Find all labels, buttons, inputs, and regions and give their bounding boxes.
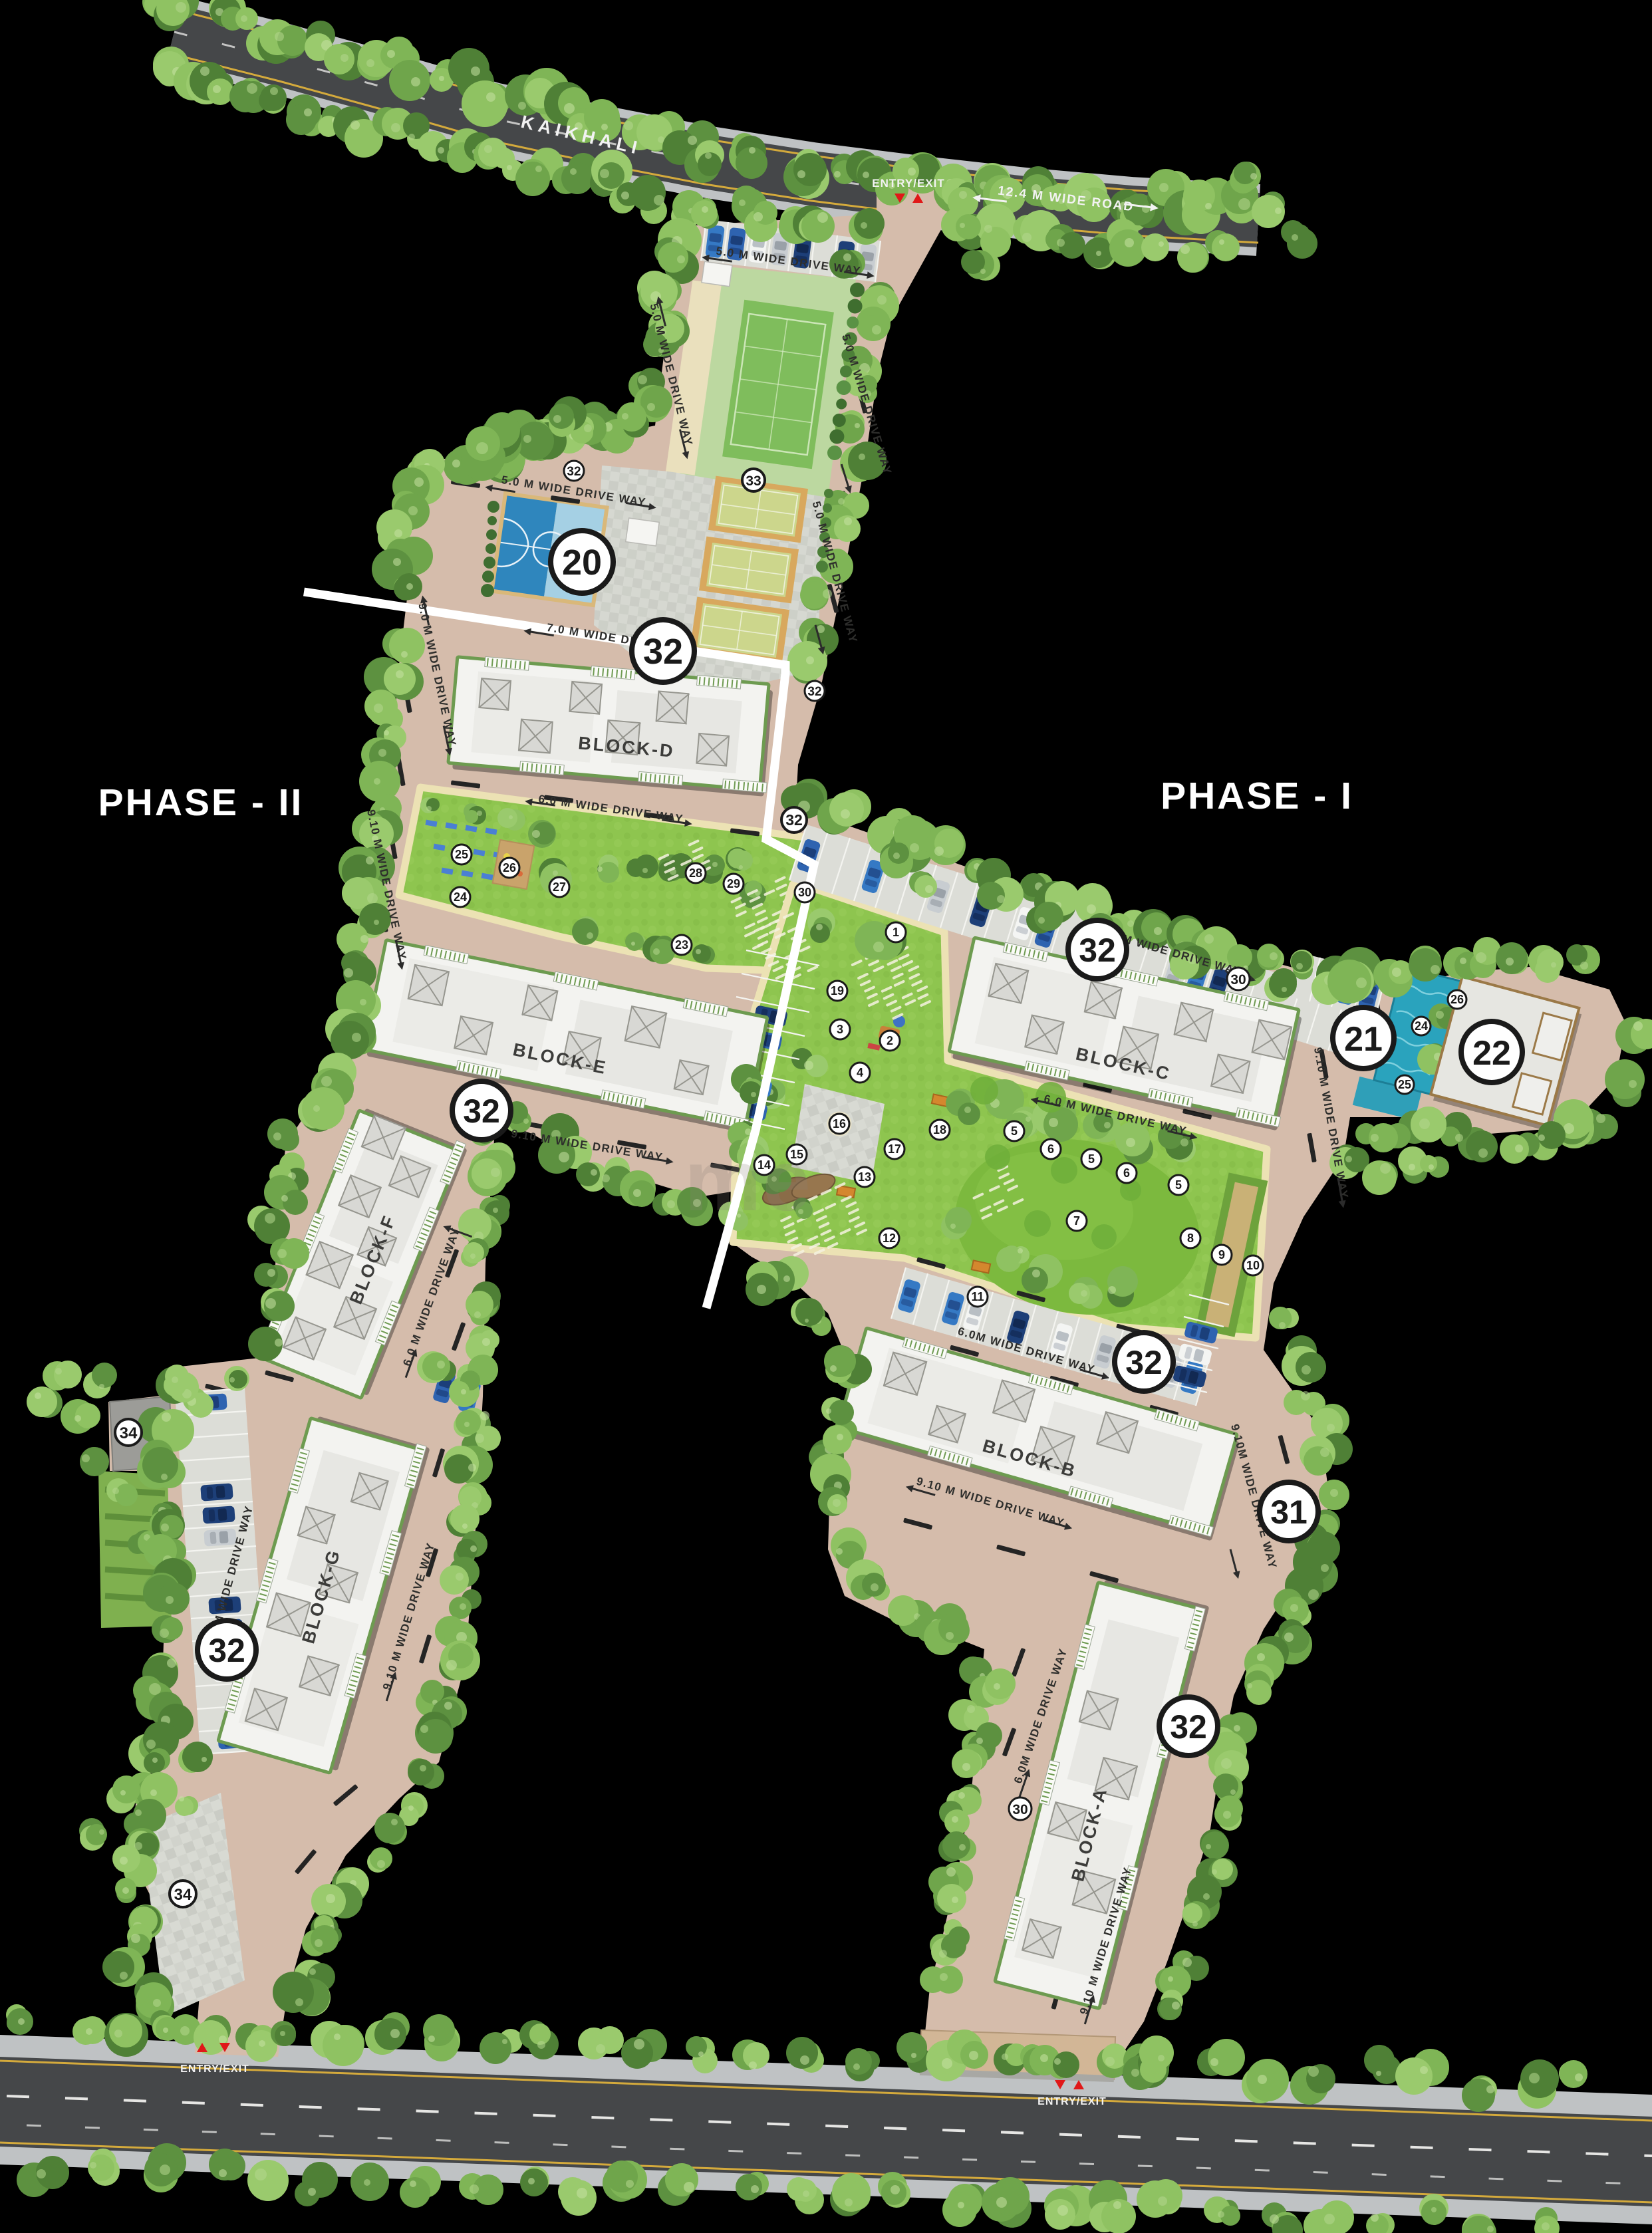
svg-text:4: 4 bbox=[857, 1066, 863, 1079]
svg-text:32: 32 bbox=[463, 1093, 500, 1130]
svg-text:1: 1 bbox=[893, 926, 899, 939]
svg-text:32: 32 bbox=[1170, 1708, 1207, 1746]
svg-text:10: 10 bbox=[1246, 1259, 1260, 1272]
svg-text:14: 14 bbox=[757, 1158, 771, 1172]
svg-text:18: 18 bbox=[933, 1123, 946, 1136]
svg-text:22: 22 bbox=[1472, 1034, 1511, 1073]
svg-text:32: 32 bbox=[643, 632, 683, 672]
svg-text:20: 20 bbox=[562, 543, 602, 583]
svg-text:5: 5 bbox=[1011, 1124, 1018, 1138]
svg-text:PHASE - II: PHASE - II bbox=[98, 781, 304, 824]
svg-text:ENTRY/EXIT: ENTRY/EXIT bbox=[872, 177, 945, 190]
svg-text:7: 7 bbox=[1073, 1214, 1080, 1228]
svg-text:25: 25 bbox=[1398, 1078, 1411, 1091]
svg-text:17: 17 bbox=[888, 1142, 901, 1156]
svg-text:26: 26 bbox=[1450, 993, 1464, 1006]
svg-text:24: 24 bbox=[454, 890, 467, 904]
svg-text:33: 33 bbox=[746, 473, 761, 489]
svg-text:5: 5 bbox=[1088, 1152, 1095, 1166]
svg-text:6: 6 bbox=[1123, 1166, 1130, 1180]
svg-text:24: 24 bbox=[1415, 1019, 1428, 1033]
svg-text:31: 31 bbox=[1270, 1494, 1308, 1531]
svg-text:32: 32 bbox=[1125, 1344, 1163, 1381]
svg-text:ENTRY/EXIT: ENTRY/EXIT bbox=[1037, 2096, 1107, 2107]
svg-text:30: 30 bbox=[798, 886, 811, 899]
svg-text:30: 30 bbox=[1230, 972, 1246, 987]
svg-text:3: 3 bbox=[837, 1023, 843, 1036]
svg-text:32: 32 bbox=[567, 465, 581, 479]
svg-text:32: 32 bbox=[785, 811, 803, 829]
svg-text:32: 32 bbox=[208, 1632, 245, 1669]
svg-text:26: 26 bbox=[503, 861, 516, 874]
svg-text:28: 28 bbox=[689, 866, 702, 880]
svg-text:21: 21 bbox=[1344, 1020, 1383, 1059]
svg-text:12: 12 bbox=[883, 1232, 896, 1245]
svg-text:32: 32 bbox=[807, 685, 821, 699]
svg-text:15: 15 bbox=[790, 1148, 803, 1161]
svg-text:19: 19 bbox=[831, 984, 844, 997]
svg-text:PHASE - I: PHASE - I bbox=[1161, 775, 1353, 817]
svg-text:5: 5 bbox=[1175, 1178, 1182, 1192]
svg-text:8: 8 bbox=[1187, 1232, 1194, 1245]
svg-text:30: 30 bbox=[1012, 1802, 1028, 1817]
svg-text:27: 27 bbox=[553, 880, 566, 894]
svg-text:34: 34 bbox=[120, 1424, 138, 1442]
svg-text:13: 13 bbox=[858, 1170, 871, 1184]
svg-text:32: 32 bbox=[1079, 932, 1116, 969]
svg-text:34: 34 bbox=[174, 1886, 192, 1904]
svg-text:29: 29 bbox=[727, 877, 740, 890]
svg-text:16: 16 bbox=[833, 1117, 846, 1130]
svg-text:11: 11 bbox=[971, 1290, 984, 1303]
svg-text:9: 9 bbox=[1218, 1248, 1225, 1261]
svg-text:23: 23 bbox=[675, 938, 688, 952]
svg-text:6: 6 bbox=[1047, 1142, 1054, 1156]
svg-text:2: 2 bbox=[887, 1034, 893, 1047]
svg-text:25: 25 bbox=[455, 848, 468, 861]
svg-text:ENTRY/EXIT: ENTRY/EXIT bbox=[180, 2063, 249, 2075]
